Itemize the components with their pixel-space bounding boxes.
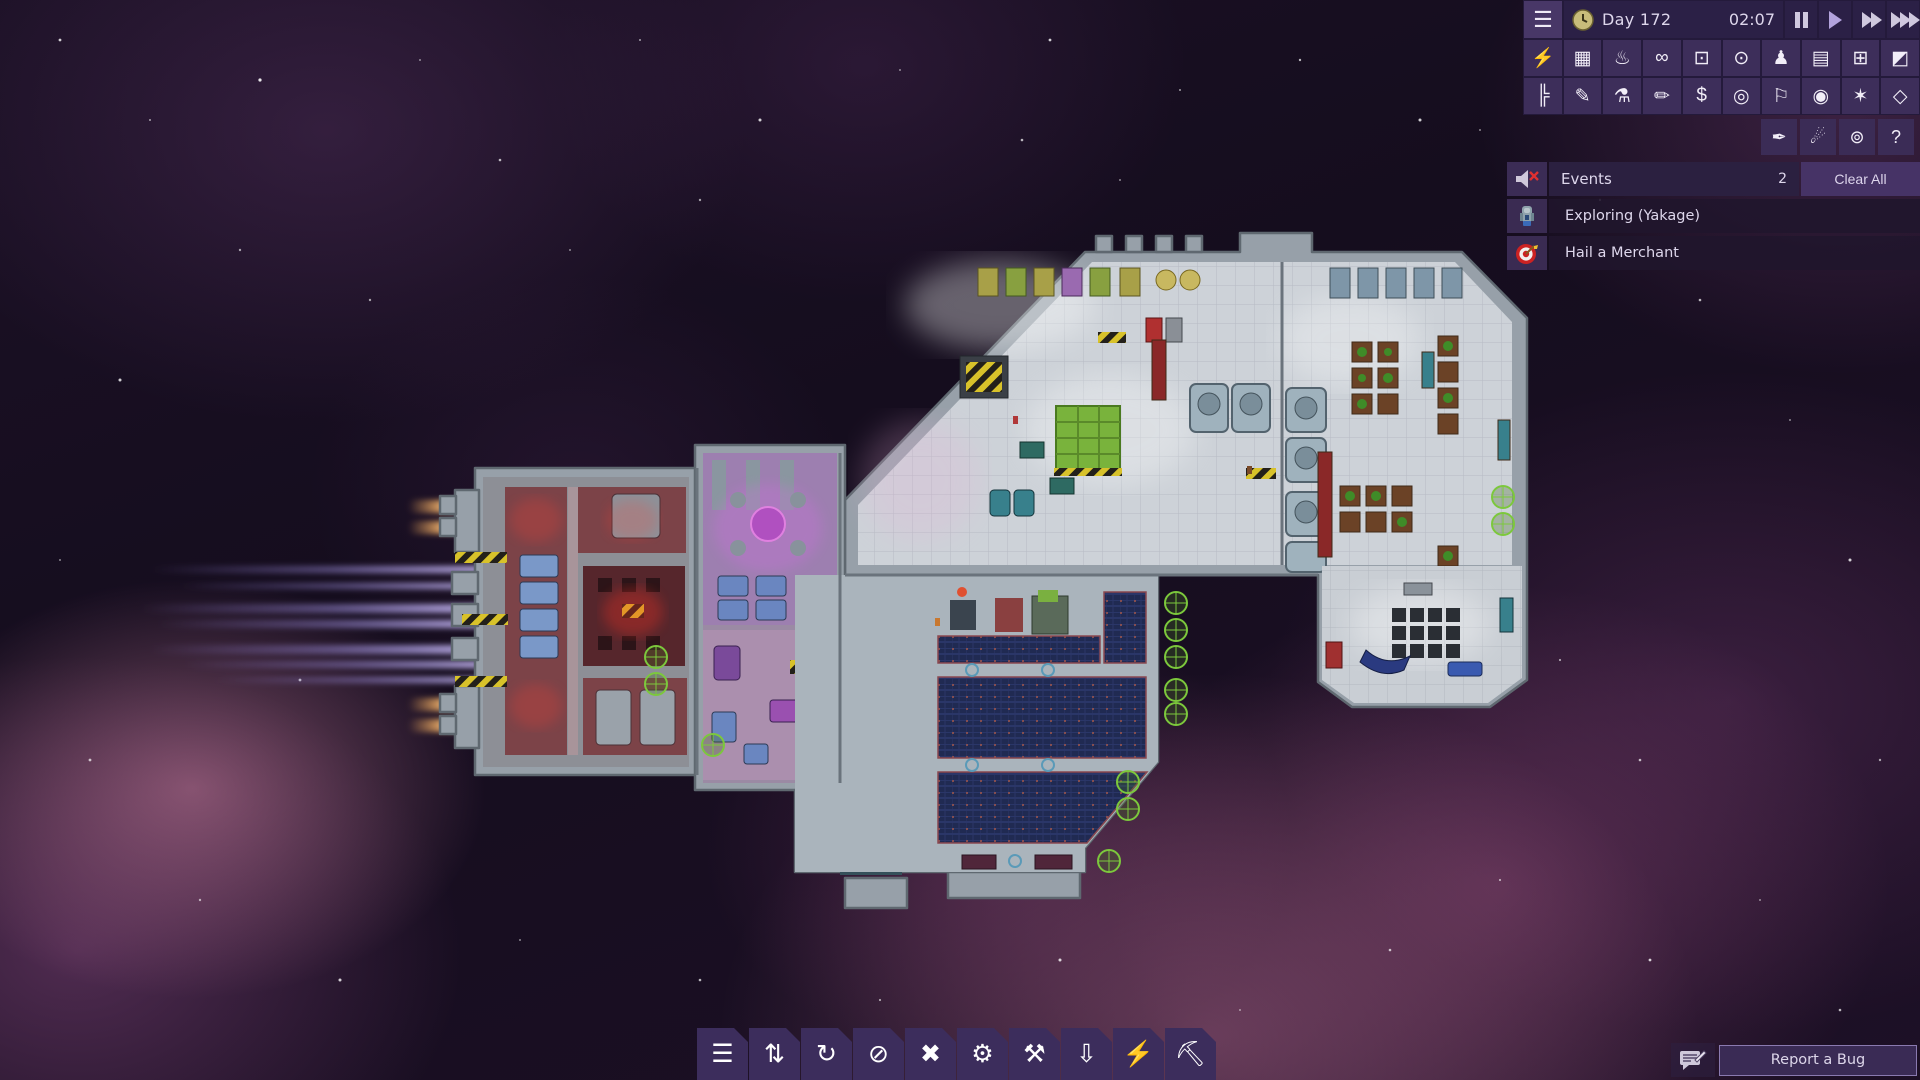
map-pin-icon: ⚐ <box>1773 85 1790 108</box>
engine-room[interactable] <box>483 477 689 767</box>
day-label: Day 172 <box>1602 10 1671 29</box>
hud-toolbar-row2: ╠ ✎ ⚗ ✏ $ ◎ ⚐ ◉ ✶ ◇ <box>1524 78 1919 114</box>
cancel-button[interactable]: ✖ <box>905 1028 956 1080</box>
clear-all-button[interactable]: Clear All <box>1801 162 1920 196</box>
navigation-button[interactable]: ⚐ <box>1762 78 1800 114</box>
build-button[interactable]: ⛏ <box>1165 1028 1216 1080</box>
hammer-icon: ⛏ <box>1175 1040 1207 1069</box>
events-title: Events <box>1561 170 1612 188</box>
logistics-icon: ╠ <box>1536 85 1549 107</box>
salvage-button[interactable]: ⇩ <box>1061 1028 1112 1080</box>
paintbrush-icon: ✒ <box>1771 127 1786 148</box>
system-view-button[interactable]: ⊚ <box>1839 119 1875 155</box>
engine-trails <box>140 566 480 683</box>
event-hail-merchant[interactable]: Hail a Merchant <box>1549 236 1920 270</box>
repair-button[interactable]: ⚒ <box>1009 1028 1060 1080</box>
log-button[interactable]: ✏ <box>1643 78 1681 114</box>
fastest-button[interactable] <box>1887 1 1919 38</box>
facilities-icon: ⊞ <box>1852 47 1868 70</box>
temperature-overlay-icon: ⊡ <box>1694 47 1710 70</box>
top-hud-panel: ☰ Day 172 02:07 <box>1523 0 1920 115</box>
x-icon: ✖ <box>920 1039 941 1069</box>
settings-button[interactable]: ⚙ <box>957 1028 1008 1080</box>
crew-icon: ♟ <box>1773 47 1790 70</box>
time-label: 02:07 <box>1729 10 1775 29</box>
schedule-icon: ▤ <box>1812 47 1830 70</box>
wrench-icon: ⚒ <box>1023 1039 1045 1069</box>
scanner-button[interactable]: ☄ <box>1800 119 1836 155</box>
question-mark-icon: ? <box>1891 127 1901 148</box>
logistics-button[interactable]: ╠ <box>1524 78 1562 114</box>
log-icon: ✏ <box>1654 85 1670 108</box>
report-bug-button[interactable]: Report a Bug <box>1719 1045 1917 1076</box>
gear-icon: ⚙ <box>971 1039 993 1069</box>
lightning-icon: ⚡ <box>1123 1040 1154 1069</box>
crew-button[interactable]: ♟ <box>1762 40 1800 76</box>
hud-row-time: ☰ Day 172 02:07 <box>1524 1 1919 38</box>
combat-button[interactable]: ✶ <box>1842 78 1880 114</box>
rotate-icon: ↻ <box>816 1039 837 1069</box>
shield-button[interactable]: ◇ <box>1881 78 1919 114</box>
hud-toolbar-row3: ✒ ☄ ⊚ ? <box>1761 119 1914 155</box>
scanner-dome-icon: ☄ <box>1810 127 1826 148</box>
hud-toolbar-row1: ⚡ ▦ ♨ ∞ ⊡ ⊙ ♟ ▤ ⊞ ◩ <box>1524 40 1919 76</box>
event-exploring[interactable]: Exploring (Yakage) <box>1549 199 1920 233</box>
temperature-overlay-button[interactable]: ⊡ <box>1683 40 1721 76</box>
sort-arrows-icon: ⇅ <box>764 1039 785 1069</box>
event-row: Exploring (Yakage) <box>1507 199 1920 233</box>
eye-icon: ◉ <box>1812 85 1829 108</box>
priorities-button[interactable]: ⇅ <box>749 1028 800 1080</box>
clock-icon <box>1572 9 1594 31</box>
help-button[interactable]: ? <box>1878 119 1914 155</box>
power-overlay-button[interactable]: ⚡ <box>1524 40 1562 76</box>
shield-icon: ◇ <box>1893 85 1908 108</box>
orbit-icon: ⊚ <box>1849 127 1864 148</box>
speed-controls <box>1785 1 1919 38</box>
play-icon <box>1829 11 1842 29</box>
bottom-toolbar: ☰ ⇅ ↻ ⊘ ✖ ⚙ ⚒ ⇩ ⚡ ⛏ <box>697 1028 1216 1080</box>
no-entry-icon: ⊘ <box>868 1039 889 1069</box>
events-panel: Events 2 Clear All Exploring (Yakage) <box>1507 162 1920 270</box>
mute-button[interactable] <box>1507 162 1547 196</box>
paint-button[interactable]: ✒ <box>1761 119 1797 155</box>
day-time-strip: Day 172 02:07 <box>1564 1 1783 38</box>
hamburger-icon: ☰ <box>1533 7 1553 33</box>
menu-button[interactable]: ☰ <box>1524 1 1562 38</box>
schedule-button[interactable]: ▤ <box>1802 40 1840 76</box>
research-flask-icon: ⚗ <box>1614 85 1631 108</box>
gas-overlay-icon: ⊙ <box>1733 47 1749 70</box>
gas-icon: ∞ <box>1655 47 1669 69</box>
gas-overlay-button[interactable]: ⊙ <box>1723 40 1761 76</box>
player-ship[interactable] <box>140 233 1527 908</box>
events-titlebar: Events 2 <box>1549 162 1799 196</box>
bug-report-area: Report a Bug <box>1671 1043 1917 1077</box>
game-screen: ☰ Day 172 02:07 <box>0 0 1920 1080</box>
target-icon: ◎ <box>1733 85 1750 108</box>
draw-button[interactable]: ✎ <box>1564 78 1602 114</box>
dollar-icon: $ <box>1696 85 1707 107</box>
missions-button[interactable]: ◎ <box>1723 78 1761 114</box>
events-count: 2 <box>1778 171 1787 187</box>
view-button[interactable]: ◉ <box>1802 78 1840 114</box>
power-tool-button[interactable]: ⚡ <box>1113 1028 1164 1080</box>
pause-icon <box>1795 12 1800 28</box>
temperature-icon: ♨ <box>1614 47 1631 70</box>
rotate-button[interactable]: ↻ <box>801 1028 852 1080</box>
gas-button[interactable]: ∞ <box>1643 40 1681 76</box>
events-header: Events 2 Clear All <box>1507 162 1920 196</box>
research-button[interactable]: ⚗ <box>1603 78 1641 114</box>
bug-chat-icon <box>1671 1043 1715 1077</box>
draw-icon: ✎ <box>1575 85 1591 108</box>
facilities-button[interactable]: ⊞ <box>1842 40 1880 76</box>
scout-ship-icon[interactable] <box>1507 199 1547 233</box>
muted-speaker-icon <box>1514 168 1540 190</box>
trade-button[interactable]: $ <box>1683 78 1721 114</box>
play-button[interactable] <box>1819 1 1851 38</box>
forbid-button[interactable]: ⊘ <box>853 1028 904 1080</box>
crate-stack[interactable] <box>1054 406 1122 476</box>
pause-button[interactable] <box>1785 1 1817 38</box>
event-row: Hail a Merchant <box>1507 236 1920 270</box>
temperature-button[interactable]: ♨ <box>1603 40 1641 76</box>
list-gear-icon: ☰ <box>711 1039 733 1069</box>
fast-forward-button[interactable] <box>1853 1 1885 38</box>
hull-tiles-icon: ▦ <box>1574 47 1592 70</box>
power-icon: ⚡ <box>1531 46 1555 70</box>
main-deck[interactable] <box>858 260 1512 592</box>
hull-tiles-button[interactable]: ▦ <box>1564 40 1602 76</box>
import-icon: ⇩ <box>1076 1039 1097 1069</box>
lounge-room[interactable] <box>1322 566 1522 703</box>
merchant-target-icon[interactable] <box>1507 236 1547 270</box>
zones-button[interactable]: ◩ <box>1881 40 1919 76</box>
zones-icon: ◩ <box>1891 47 1909 70</box>
manage-button[interactable]: ☰ <box>697 1028 748 1080</box>
starburst-icon: ✶ <box>1852 85 1868 108</box>
